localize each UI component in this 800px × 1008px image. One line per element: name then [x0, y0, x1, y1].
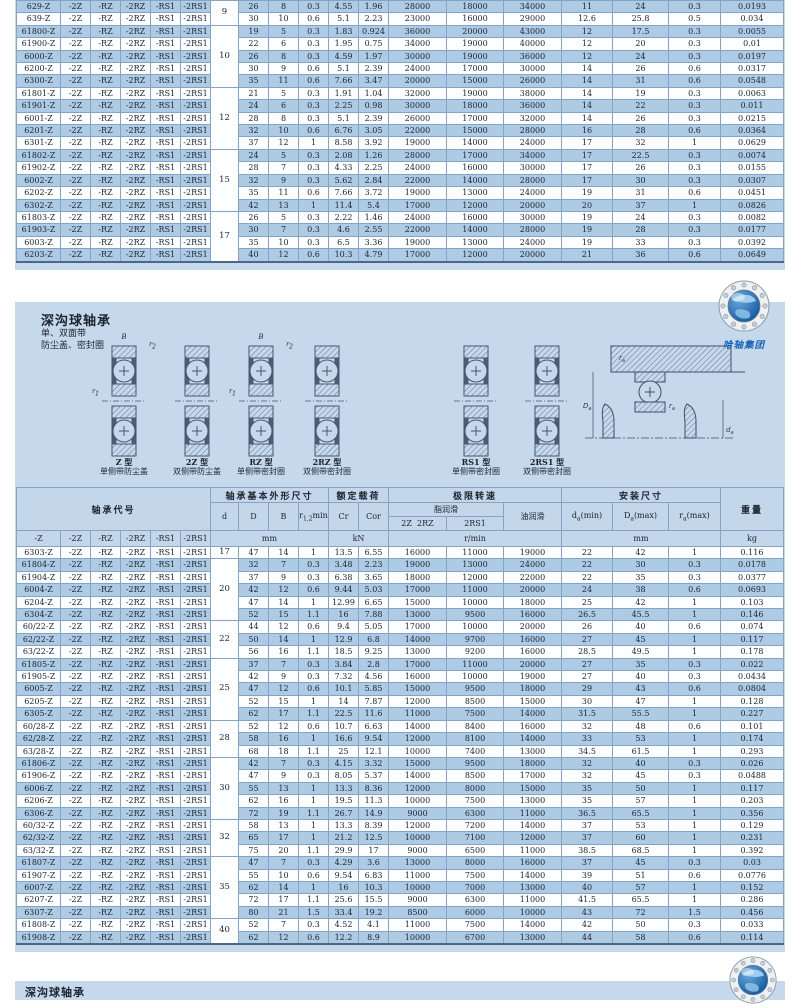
- data-cell: 37: [562, 857, 613, 869]
- bearing-code-cell: 6005-Z: [17, 683, 61, 695]
- data-cell: 15000: [389, 683, 447, 695]
- data-cell: -RS1: [151, 720, 181, 732]
- col-header-Da-max: Da(max): [613, 503, 669, 531]
- data-cell: 60: [613, 832, 669, 844]
- dim-label-r1: r1: [229, 387, 236, 397]
- data-cell: 26: [613, 63, 669, 75]
- data-cell: 20000: [447, 25, 504, 37]
- data-cell: 13000: [447, 236, 504, 248]
- data-cell: 1: [299, 596, 329, 608]
- bearing-type-desc: 单侧带防尘盖: [83, 467, 165, 477]
- data-cell: 26: [239, 211, 269, 223]
- data-cell: 12: [269, 249, 299, 262]
- data-cell: 1: [669, 547, 721, 559]
- data-cell: 0.0548: [721, 75, 784, 87]
- data-cell: 0.3: [669, 658, 721, 670]
- data-cell: 0.6: [669, 584, 721, 596]
- data-cell: 0.034: [721, 13, 784, 25]
- bearing-code-cell: 62/32-Z: [17, 832, 61, 844]
- bearing-type-desc: 单侧带密封圈: [435, 467, 517, 477]
- data-cell: -2RZ: [121, 125, 151, 137]
- data-cell: 27: [562, 633, 613, 645]
- data-cell: 12: [269, 931, 299, 944]
- data-cell: 0.3: [669, 757, 721, 769]
- data-cell: -RS1: [151, 844, 181, 856]
- data-cell: 8: [269, 112, 299, 124]
- data-cell: 28.5: [562, 646, 613, 658]
- data-cell: 10000: [389, 795, 447, 807]
- data-cell: 10000: [504, 906, 562, 918]
- unit-mm-mount: mm: [562, 531, 721, 547]
- bearing-cross-section: [525, 345, 569, 457]
- data-cell: -2RS1: [181, 174, 211, 186]
- bearing-diagram-4: 2RZ 型双侧带密封圈: [305, 345, 349, 457]
- data-cell: -2RZ: [121, 683, 151, 695]
- data-cell: 18000: [504, 596, 562, 608]
- data-cell: 62: [239, 708, 269, 720]
- data-cell: 9.54: [359, 733, 389, 745]
- data-cell: 28000: [389, 149, 447, 161]
- data-cell: -RS1: [151, 869, 181, 881]
- data-cell: 0.3: [669, 671, 721, 683]
- data-cell: -2RS1: [181, 633, 211, 645]
- data-cell: 22.5: [613, 149, 669, 161]
- table-row: 6306-Z-2Z-RZ-2RZ-RS1-2RS172191.126.714.9…: [17, 807, 784, 819]
- data-cell: 61.5: [613, 745, 669, 757]
- bearing-type-name: RS1 型: [435, 457, 517, 467]
- data-cell: 14.9: [359, 807, 389, 819]
- mounting-dimensions-diagram: ra Da ra da: [583, 342, 753, 457]
- data-cell: 6.55: [359, 547, 389, 559]
- data-cell: -RZ: [91, 869, 121, 881]
- data-cell: -2RZ: [121, 795, 151, 807]
- table-row: 6005-Z-2Z-RZ-2RZ-RS1-2RS147120.610.15.85…: [17, 683, 784, 695]
- data-cell: 13: [269, 782, 299, 794]
- data-cell: 12: [269, 683, 299, 695]
- table-row: 6201-Z-2Z-RZ-2RZ-RS1-2RS132100.66.763.05…: [17, 125, 784, 137]
- data-cell: 58: [239, 819, 269, 831]
- data-cell: 12.6: [562, 13, 613, 25]
- data-cell: 14: [562, 75, 613, 87]
- data-cell: -RS1: [151, 633, 181, 645]
- data-cell: 0.3: [299, 571, 329, 583]
- data-cell: -2RS1: [181, 249, 211, 262]
- data-cell: 40: [613, 757, 669, 769]
- unit-rpm: r/min: [389, 531, 562, 547]
- col-header-suffix-rs1: -RS1: [151, 531, 181, 547]
- data-cell: 16000: [447, 13, 504, 25]
- data-cell: 52: [239, 695, 269, 707]
- data-cell: 2.8: [359, 658, 389, 670]
- data-cell: 1: [669, 695, 721, 707]
- data-cell: -RZ: [91, 63, 121, 75]
- data-cell: 15000: [447, 125, 504, 137]
- data-cell: 16: [562, 125, 613, 137]
- data-cell: -RZ: [91, 100, 121, 112]
- data-cell: 0.3: [669, 770, 721, 782]
- data-cell: 25: [562, 596, 613, 608]
- data-cell: -2RZ: [121, 708, 151, 720]
- data-cell: 1: [669, 782, 721, 794]
- dim-label-ra-mid: ra: [669, 402, 675, 412]
- data-cell: 7.88: [359, 609, 389, 621]
- bore-diameter-cell: 25: [211, 658, 239, 720]
- data-cell: -RS1: [151, 211, 181, 223]
- data-cell: 0.6: [299, 13, 329, 25]
- data-cell: -2Z: [61, 50, 91, 62]
- data-cell: 14: [269, 547, 299, 559]
- data-cell: 22000: [389, 174, 447, 186]
- data-cell: -2RS1: [181, 695, 211, 707]
- data-cell: -2RS1: [181, 931, 211, 944]
- data-cell: 27: [562, 671, 613, 683]
- col-group-speed: 极限转速: [389, 488, 562, 503]
- data-cell: 11.6: [359, 708, 389, 720]
- data-cell: 0.3: [299, 919, 329, 931]
- data-cell: -RZ: [91, 720, 121, 732]
- data-cell: 1: [299, 881, 329, 893]
- data-cell: -RZ: [91, 745, 121, 757]
- data-cell: -RS1: [151, 857, 181, 869]
- data-cell: 6300: [447, 807, 504, 819]
- data-cell: -RZ: [91, 125, 121, 137]
- data-cell: -2RS1: [181, 745, 211, 757]
- data-cell: 12: [269, 137, 299, 149]
- data-cell: 14000: [504, 819, 562, 831]
- data-cell: -RZ: [91, 609, 121, 621]
- data-cell: 0.6: [299, 869, 329, 881]
- data-cell: -2RZ: [121, 249, 151, 262]
- data-cell: -2RZ: [121, 1, 151, 13]
- data-cell: -RZ: [91, 75, 121, 87]
- data-cell: -RS1: [151, 236, 181, 248]
- bearing-diagram-2: 2Z 型双侧带防尘盖: [175, 345, 219, 457]
- data-cell: 19000: [389, 236, 447, 248]
- data-cell: 49.5: [613, 646, 669, 658]
- data-cell: -2RS1: [181, 720, 211, 732]
- table-row: 61900-Z-2Z-RZ-2RZ-RS1-2RS12260.31.950.75…: [17, 38, 784, 50]
- data-cell: 4.6: [329, 224, 359, 236]
- data-cell: 0.116: [721, 547, 784, 559]
- table-row: 6303-Z-2Z-RZ-2RZ-RS1-2RS1174714113.56.55…: [17, 547, 784, 559]
- data-cell: 17000: [504, 770, 562, 782]
- data-cell: 32: [562, 770, 613, 782]
- data-cell: -RZ: [91, 38, 121, 50]
- data-cell: -2Z: [61, 869, 91, 881]
- data-cell: -RS1: [151, 621, 181, 633]
- data-cell: -RZ: [91, 795, 121, 807]
- data-cell: 0.026: [721, 757, 784, 769]
- bearing-code-cell: 6007-Z: [17, 881, 61, 893]
- data-cell: 0.103: [721, 596, 784, 608]
- data-cell: 4.33: [329, 162, 359, 174]
- data-cell: -RZ: [91, 162, 121, 174]
- bearing-code-cell: 6201-Z: [17, 125, 61, 137]
- data-cell: 15000: [389, 757, 447, 769]
- bearing-code-cell: 62/22-Z: [17, 633, 61, 645]
- data-cell: 3.92: [359, 137, 389, 149]
- bearing-cross-section: [102, 345, 146, 457]
- data-cell: -2RS1: [181, 708, 211, 720]
- data-cell: 11000: [389, 708, 447, 720]
- data-cell: 0.117: [721, 633, 784, 645]
- data-cell: 26.7: [329, 807, 359, 819]
- data-cell: 1.91: [329, 87, 359, 99]
- table-row: 6006-Z-2Z-RZ-2RZ-RS1-2RS15513113.38.3612…: [17, 782, 784, 794]
- bearing-code-cell: 6002-Z: [17, 174, 61, 186]
- data-cell: 14000: [389, 720, 447, 732]
- data-cell: 1: [669, 733, 721, 745]
- bore-diameter-cell: 32: [211, 819, 239, 856]
- data-cell: 9000: [389, 844, 447, 856]
- data-cell: 17: [562, 174, 613, 186]
- bearing-cross-section: [454, 345, 498, 457]
- data-cell: 6.65: [359, 596, 389, 608]
- data-cell: 22.5: [329, 708, 359, 720]
- data-cell: 0.3: [299, 770, 329, 782]
- table-row: 6207-Z-2Z-RZ-2RZ-RS1-2RS172171.125.615.5…: [17, 894, 784, 906]
- data-cell: 55.5: [613, 708, 669, 720]
- data-cell: 72: [613, 906, 669, 918]
- data-cell: 0.0804: [721, 683, 784, 695]
- data-cell: -RS1: [151, 38, 181, 50]
- table-row: 6200-Z-2Z-RZ-2RZ-RS1-2RS13090.65.12.3924…: [17, 63, 784, 75]
- data-cell: -RS1: [151, 584, 181, 596]
- bearing-code-cell: 6004-Z: [17, 584, 61, 596]
- data-cell: 12.99: [329, 596, 359, 608]
- data-cell: 0.0451: [721, 187, 784, 199]
- data-cell: -RS1: [151, 795, 181, 807]
- data-cell: 8.39: [359, 819, 389, 831]
- data-cell: 3.32: [359, 757, 389, 769]
- data-cell: -2Z: [61, 919, 91, 931]
- data-cell: -RZ: [91, 770, 121, 782]
- data-cell: -RS1: [151, 50, 181, 62]
- data-cell: 32000: [389, 87, 447, 99]
- data-cell: 0.3: [299, 162, 329, 174]
- data-cell: -2RZ: [121, 869, 151, 881]
- data-cell: 2.23: [359, 559, 389, 571]
- bearing-code-cell: 6001-Z: [17, 112, 61, 124]
- data-cell: 0.3: [669, 224, 721, 236]
- data-cell: 53: [613, 733, 669, 745]
- data-cell: -2RZ: [121, 596, 151, 608]
- data-cell: 0.3: [299, 87, 329, 99]
- data-cell: 42: [562, 919, 613, 931]
- data-cell: 5.4: [359, 199, 389, 211]
- col-header-cor: Cor: [359, 503, 389, 531]
- data-cell: 30: [239, 13, 269, 25]
- data-cell: 45: [613, 633, 669, 645]
- data-cell: 0.456: [721, 906, 784, 918]
- data-cell: 24000: [504, 187, 562, 199]
- bore-diameter-cell: 28: [211, 720, 239, 757]
- data-cell: -RS1: [151, 571, 181, 583]
- data-cell: 1.1: [299, 646, 329, 658]
- data-cell: 45: [613, 857, 669, 869]
- data-cell: 72: [239, 807, 269, 819]
- data-cell: 9.4: [329, 621, 359, 633]
- data-cell: 14000: [504, 708, 562, 720]
- data-cell: -RZ: [91, 584, 121, 596]
- data-cell: 0.6: [669, 249, 721, 262]
- data-cell: 3.6: [359, 857, 389, 869]
- data-cell: -2Z: [61, 931, 91, 944]
- data-cell: -2Z: [61, 832, 91, 844]
- data-cell: 1: [669, 795, 721, 807]
- data-cell: 37: [239, 137, 269, 149]
- data-cell: 19: [562, 236, 613, 248]
- data-cell: 4.29: [329, 857, 359, 869]
- col-group-code: 轴承代号: [17, 488, 211, 531]
- page-section-top: 629-Z-2Z-RZ-2RZ-RS1-2RS192680.34.551.962…: [15, 0, 785, 270]
- data-cell: 0.3: [299, 174, 329, 186]
- data-cell: 5.1: [329, 63, 359, 75]
- bearing-type-desc: 双侧带密封圈: [286, 467, 368, 477]
- data-cell: -2Z: [61, 782, 91, 794]
- table-row: 629-Z-2Z-RZ-2RZ-RS1-2RS192680.34.551.962…: [17, 1, 784, 13]
- data-cell: 16000: [389, 671, 447, 683]
- data-cell: 2.39: [359, 112, 389, 124]
- data-cell: 1: [299, 547, 329, 559]
- data-cell: 7500: [447, 795, 504, 807]
- data-cell: -2RS1: [181, 50, 211, 62]
- data-cell: -2RS1: [181, 819, 211, 831]
- data-cell: 12000: [447, 571, 504, 583]
- data-cell: 0.5: [669, 13, 721, 25]
- data-cell: 35: [562, 795, 613, 807]
- data-cell: 13000: [504, 931, 562, 944]
- data-cell: -2RS1: [181, 584, 211, 596]
- data-cell: 28000: [504, 125, 562, 137]
- col-header-suffix-z: -Z: [17, 531, 61, 547]
- data-cell: 16000: [447, 162, 504, 174]
- data-cell: -RZ: [91, 199, 121, 211]
- data-cell: 9.44: [329, 584, 359, 596]
- data-cell: -RS1: [151, 559, 181, 571]
- data-cell: 17000: [447, 112, 504, 124]
- table-row: 61800-Z-2Z-RZ-2RZ-RS1-2RS1101950.31.830.…: [17, 25, 784, 37]
- data-cell: 7: [269, 224, 299, 236]
- data-cell: -RZ: [91, 547, 121, 559]
- bearing-code-cell: 6301-Z: [17, 137, 61, 149]
- data-cell: 3.05: [359, 125, 389, 137]
- data-cell: 20: [269, 844, 299, 856]
- data-cell: -RS1: [151, 671, 181, 683]
- data-cell: 11: [562, 1, 613, 13]
- data-cell: -2RZ: [121, 807, 151, 819]
- data-cell: -2Z: [61, 621, 91, 633]
- data-cell: -RS1: [151, 609, 181, 621]
- bearing-code-cell: 61804-Z: [17, 559, 61, 571]
- data-cell: 11000: [447, 658, 504, 670]
- data-cell: 35: [613, 658, 669, 670]
- data-cell: 37: [239, 658, 269, 670]
- data-cell: -2Z: [61, 211, 91, 223]
- data-cell: 29: [562, 683, 613, 695]
- data-cell: -2Z: [61, 733, 91, 745]
- data-cell: 8.36: [359, 782, 389, 794]
- data-cell: 6.8: [359, 633, 389, 645]
- data-cell: 1.1: [299, 844, 329, 856]
- bearing-code-cell: 6306-Z: [17, 807, 61, 819]
- data-cell: 30000: [389, 50, 447, 62]
- data-cell: 42: [613, 596, 669, 608]
- data-cell: 7100: [447, 832, 504, 844]
- data-cell: -2Z: [61, 559, 91, 571]
- bearing-code-cell: 629-Z: [17, 1, 61, 13]
- data-cell: 0.3: [669, 25, 721, 37]
- data-cell: -2Z: [61, 720, 91, 732]
- data-cell: 1: [669, 137, 721, 149]
- bearing-code-cell: 60/28-Z: [17, 720, 61, 732]
- data-cell: -RZ: [91, 25, 121, 37]
- data-cell: -2RS1: [181, 1, 211, 13]
- data-cell: 0.0693: [721, 584, 784, 596]
- data-cell: -2RZ: [121, 584, 151, 596]
- data-cell: 18000: [504, 757, 562, 769]
- table-row: 60/32-Z-2Z-RZ-2RZ-RS1-2RS1325813113.38.3…: [17, 819, 784, 831]
- table-row: 61808-Z-2Z-RZ-2RZ-RS1-2RS1405270.34.524.…: [17, 919, 784, 931]
- data-cell: 27: [562, 658, 613, 670]
- table-row: 6003-Z-2Z-RZ-2RZ-RS1-2RS135100.36.53.361…: [17, 236, 784, 248]
- data-cell: -RS1: [151, 757, 181, 769]
- data-cell: 40: [613, 671, 669, 683]
- data-cell: 28000: [389, 1, 447, 13]
- data-cell: 13.5: [329, 547, 359, 559]
- data-cell: 1.1: [299, 807, 329, 819]
- data-cell: 12000: [389, 695, 447, 707]
- data-cell: 2.25: [359, 162, 389, 174]
- data-cell: -2Z: [61, 584, 91, 596]
- data-cell: 14: [562, 112, 613, 124]
- bearing-code-cell: 60/32-Z: [17, 819, 61, 831]
- data-cell: 9.54: [329, 869, 359, 881]
- data-cell: 4.55: [329, 1, 359, 13]
- data-cell: -2Z: [61, 236, 91, 248]
- data-cell: 22: [562, 559, 613, 571]
- data-cell: 0.0307: [721, 174, 784, 186]
- data-cell: 33: [562, 733, 613, 745]
- data-cell: 7: [269, 757, 299, 769]
- data-cell: 20000: [389, 75, 447, 87]
- data-cell: 7400: [447, 745, 504, 757]
- data-cell: -2RS1: [181, 844, 211, 856]
- table-row: 6301-Z-2Z-RZ-2RZ-RS1-2RS1371218.583.9219…: [17, 137, 784, 149]
- data-cell: 12: [562, 25, 613, 37]
- data-cell: 15: [269, 695, 299, 707]
- data-cell: -RZ: [91, 224, 121, 236]
- data-cell: 20000: [504, 199, 562, 211]
- table-row: 60/28-Z-2Z-RZ-2RZ-RS1-2RS12852120.610.76…: [17, 720, 784, 732]
- data-cell: 9200: [447, 646, 504, 658]
- table-row: 61908-Z-2Z-RZ-2RZ-RS1-2RS162120.612.28.9…: [17, 931, 784, 944]
- table-row: 61904-Z-2Z-RZ-2RZ-RS1-2RS13790.36.383.65…: [17, 571, 784, 583]
- data-cell: 17000: [389, 658, 447, 670]
- data-cell: 25.6: [329, 894, 359, 906]
- data-cell: 0.0193: [721, 1, 784, 13]
- data-cell: 0.152: [721, 881, 784, 893]
- col-header-da-min: da(min): [562, 503, 613, 531]
- data-cell: 18: [269, 745, 299, 757]
- col-header-suffix-rz: -RZ: [91, 531, 121, 547]
- data-cell: -RZ: [91, 87, 121, 99]
- data-cell: -RZ: [91, 832, 121, 844]
- data-cell: 26: [239, 1, 269, 13]
- data-cell: 5.37: [359, 770, 389, 782]
- data-cell: 16000: [504, 609, 562, 621]
- data-cell: 14: [562, 63, 613, 75]
